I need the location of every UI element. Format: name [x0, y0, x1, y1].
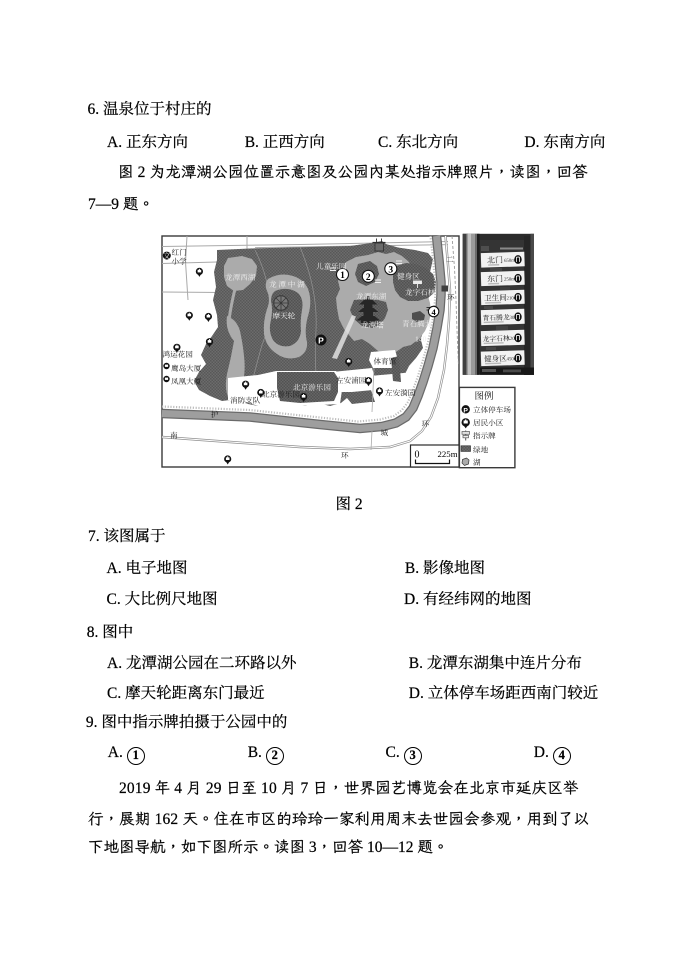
svg-text:居民小区: 居民小区: [473, 419, 504, 428]
svg-text:北京游乐园: 北京游乐园: [293, 383, 331, 392]
svg-text:左安漪园: 左安漪园: [385, 389, 416, 398]
svg-text:护: 护: [211, 410, 219, 419]
svg-text:4: 4: [431, 307, 436, 317]
svg-text:140: 140: [415, 335, 427, 344]
svg-text:东门: 东门: [487, 274, 503, 283]
svg-text:南: 南: [170, 431, 178, 440]
svg-text:鸿运花园: 鸿运花园: [163, 350, 194, 359]
svg-text:龙潭东湖: 龙潭东湖: [356, 292, 387, 301]
svg-text:650m: 650m: [504, 259, 515, 264]
svg-text:凤凰大厦: 凤凰大厦: [171, 377, 202, 386]
svg-text:龙潭中湖: 龙潭中湖: [269, 280, 307, 289]
svg-text:健身区: 健身区: [484, 354, 507, 364]
svg-text:1: 1: [340, 271, 345, 281]
svg-text:2: 2: [366, 273, 371, 283]
svg-text:龙潭西湖: 龙潭西湖: [225, 273, 256, 282]
svg-text:消防支队: 消防支队: [230, 396, 261, 405]
svg-text:湖: 湖: [473, 458, 481, 467]
svg-text:左安浦园: 左安浦园: [336, 376, 367, 385]
svg-text:北门: 北门: [487, 256, 503, 265]
svg-text:文: 文: [163, 251, 171, 260]
svg-text:环: 环: [447, 293, 455, 302]
svg-text:龙潭塔: 龙潭塔: [361, 320, 384, 330]
svg-text:体育馆: 体育馆: [374, 357, 397, 366]
svg-text:健身区: 健身区: [397, 272, 420, 281]
svg-text:0: 0: [415, 450, 420, 461]
svg-text:环: 环: [422, 419, 430, 428]
svg-text:P: P: [463, 407, 468, 414]
svg-text:二: 二: [446, 255, 454, 264]
svg-text:龙字石林: 龙字石林: [405, 288, 436, 297]
svg-text:指示牌: 指示牌: [473, 432, 496, 441]
svg-text:250m: 250m: [504, 277, 515, 282]
svg-text:龙字石林: 龙字石林: [482, 335, 510, 344]
svg-text:红门: 红门: [172, 248, 188, 257]
svg-text:城: 城: [381, 429, 389, 438]
svg-text:小学: 小学: [172, 257, 188, 266]
svg-text:青石腾龙: 青石腾龙: [402, 320, 433, 329]
svg-text:环: 环: [341, 451, 349, 460]
svg-text:摩天轮: 摩天轮: [273, 312, 296, 321]
svg-text:儿童乐园: 儿童乐园: [316, 262, 347, 271]
svg-text:图例: 图例: [475, 391, 494, 402]
svg-text:卫生间: 卫生间: [484, 293, 507, 303]
svg-text:绿地: 绿地: [473, 445, 489, 454]
svg-text:青石腾龙: 青石腾龙: [482, 314, 510, 323]
svg-text:225m: 225m: [438, 449, 458, 459]
svg-text:3: 3: [388, 265, 393, 275]
svg-text:鹰岛大厦: 鹰岛大厦: [171, 364, 202, 373]
svg-text:P: P: [318, 336, 324, 346]
svg-text:立体停车场: 立体停车场: [473, 406, 511, 415]
